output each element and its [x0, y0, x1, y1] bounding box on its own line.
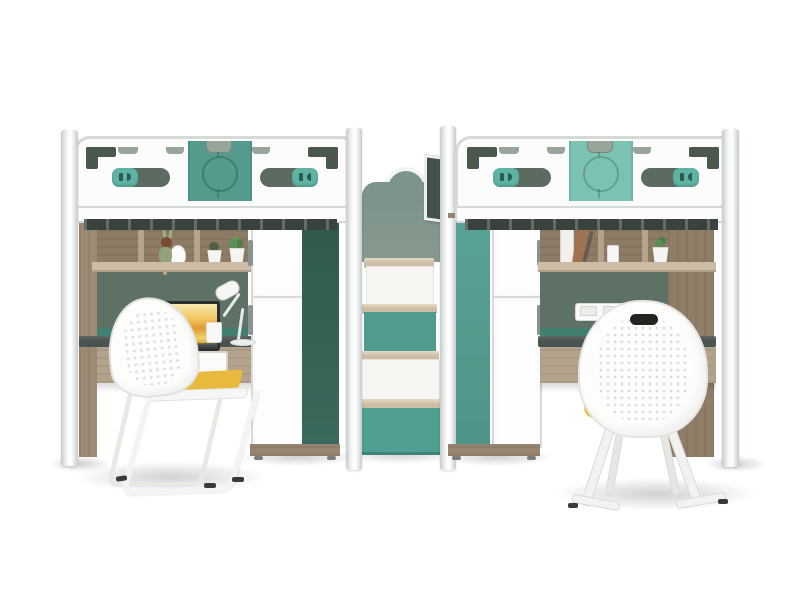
right-chair-backrest — [578, 300, 708, 438]
right-rail-line-motif — [598, 189, 600, 198]
right-rail-line-motif — [598, 152, 600, 157]
succulent-plant — [209, 242, 219, 251]
left-rail-notch-handle — [206, 141, 232, 153]
right-chair-foot — [568, 503, 578, 508]
floor-shadow-left-post — [50, 456, 110, 472]
right-wardrobe-teal-panel — [456, 217, 490, 444]
right-wardrobe-foot — [527, 456, 536, 460]
handle-glyph — [680, 173, 684, 181]
left-outer-post — [61, 130, 78, 466]
left-chair-foot — [232, 477, 244, 482]
right-rail-corner-accent — [707, 147, 719, 169]
right-wardrobe-lower-door — [492, 296, 542, 448]
handle-glyph — [500, 173, 504, 181]
right-chair-handle-slot — [630, 314, 658, 325]
right-rail-handle-teal-cap — [673, 168, 699, 187]
left-wardrobe-foot — [327, 456, 336, 460]
left-wardrobe-door-handle — [248, 305, 253, 335]
stair-left-post — [346, 128, 362, 470]
left-rail-corner-accent — [326, 147, 338, 169]
green-plant — [654, 237, 666, 248]
outlet-socket — [580, 306, 597, 316]
right-rail-notch-handle — [587, 141, 613, 153]
green-plant — [229, 237, 243, 249]
right-shelf-divider — [598, 224, 604, 264]
left-bed-slats — [84, 219, 337, 230]
stair-riser-white — [366, 266, 434, 308]
product-photo-bunk-bed-set — [0, 0, 800, 600]
stair-right-post — [440, 126, 456, 470]
left-shelf-board — [92, 262, 252, 272]
left-wardrobe-base — [250, 444, 340, 456]
right-rail-sage-tab — [547, 147, 565, 154]
left-rail-circle-motif — [202, 156, 238, 192]
left-rail-line-motif — [217, 152, 219, 157]
right-rail-corner-accent — [467, 147, 479, 169]
left-rail-handle-teal-cap — [292, 168, 318, 187]
desk-lamp-base — [230, 339, 256, 346]
handle-glyph — [307, 173, 311, 181]
left-rail-sage-tab — [252, 147, 270, 154]
left-rail-line-motif — [217, 189, 219, 198]
right-rail-circle-motif — [583, 156, 619, 192]
right-rail-handle-teal-cap — [493, 168, 519, 187]
left-wardrobe-lower-door — [251, 296, 304, 448]
left-wardrobe-green-panel — [302, 217, 339, 444]
right-outer-post — [722, 129, 739, 467]
left-chair-perforation — [120, 308, 185, 388]
right-shelf-board — [538, 262, 716, 272]
right-wardrobe-foot — [452, 456, 461, 460]
left-shelf-divider — [138, 224, 144, 264]
left-wardrobe-foot — [254, 456, 263, 460]
handle-glyph — [119, 173, 123, 181]
left-shelf-divider — [194, 224, 200, 264]
stair-bottom-drawer-teal — [359, 408, 441, 455]
handle-glyph — [688, 173, 692, 181]
right-bed-slats — [465, 219, 718, 230]
mug — [206, 322, 222, 343]
stair-riser-teal — [364, 312, 436, 353]
left-rail-handle-teal-cap — [112, 168, 138, 187]
stair-riser-white — [361, 359, 440, 403]
handle-glyph — [299, 173, 303, 181]
right-rail-sage-tab — [499, 147, 519, 154]
right-shelf-divider — [642, 224, 648, 264]
left-rail-sage-tab — [118, 147, 138, 154]
left-rail-sage-tab — [166, 147, 184, 154]
right-chair-perforation — [598, 318, 688, 422]
right-rail-sage-tab — [633, 147, 651, 154]
left-wardrobe-door-handle — [248, 240, 253, 266]
left-chair-foot — [204, 483, 216, 488]
doll-body — [159, 247, 172, 263]
right-chair-foot — [718, 499, 728, 504]
left-rail-corner-accent — [86, 147, 98, 169]
right-wardrobe-base — [448, 444, 540, 456]
